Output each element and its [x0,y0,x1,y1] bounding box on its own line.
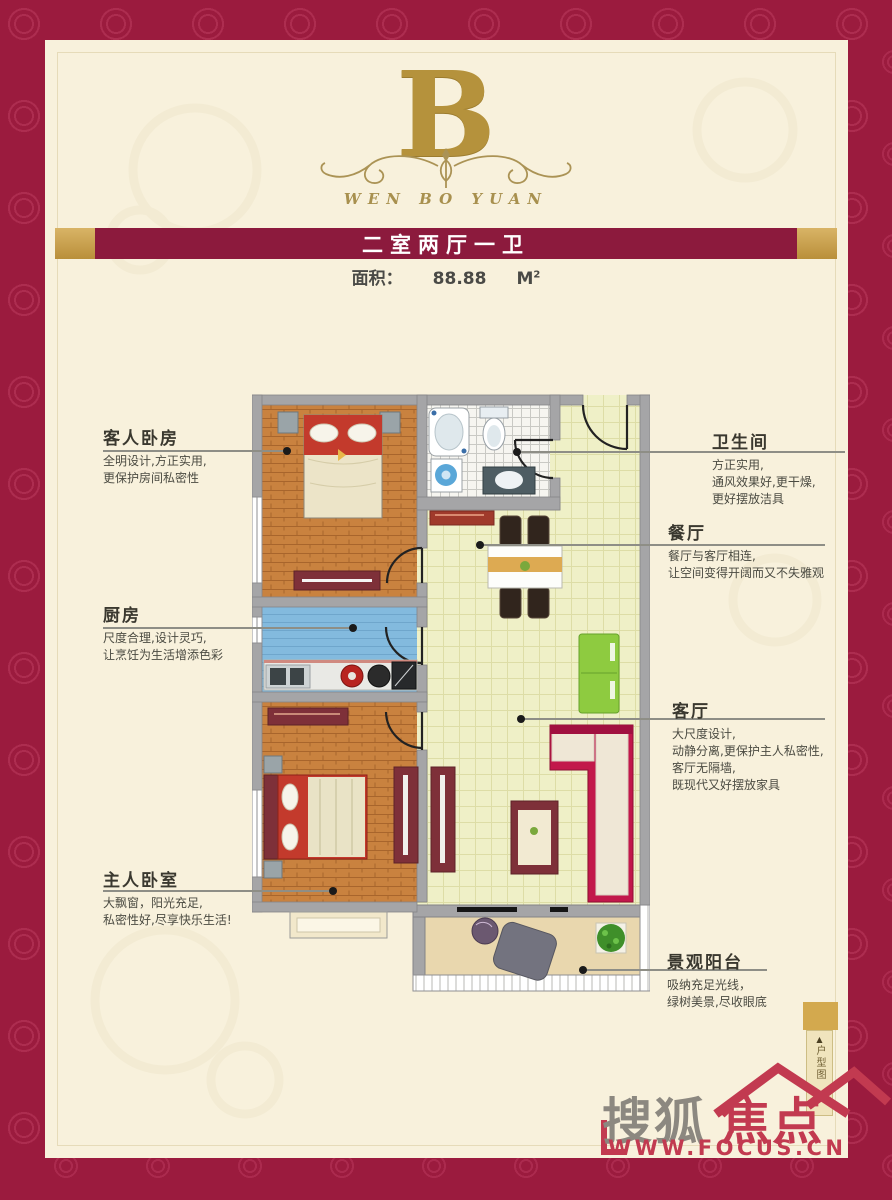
brand-name: WEN BO YUAN [0,190,892,208]
room-desc: 大飘窗，阳光充足, 私密性好,尽享快乐生活! [103,895,293,929]
room-title: 卫生间 [712,428,892,457]
room-label-bathroom: 卫生间 方正实用, 通风效果好,更干燥, 更好摆放洁具 [712,428,892,508]
room-desc: 餐厅与客厅相连, 让空间变得开阔而又不失雅观 [668,548,858,582]
area-label: 面积： [352,264,403,289]
type-banner: 二室两厅一卫 [55,228,837,259]
area-unit: M2 [516,269,540,289]
room-desc: 方正实用, 通风效果好,更干燥, 更好摆放洁具 [712,457,892,508]
room-title: 主人卧室 [103,866,293,895]
sohu-focus-logo: 搜狐 焦点 WWW.FOCUS.CN [596,1056,892,1168]
area-row: 面积： 88.88 M2 [0,264,892,289]
bay-window [290,912,387,938]
room-desc: 全明设计,方正实用, 更保护房间私密性 [103,453,293,487]
floor-plan [252,391,650,997]
room-title: 餐厅 [668,519,858,548]
room-label-kitchen: 厨房 尺度合理,设计灵巧, 让烹饪为生活增添色彩 [103,601,293,664]
logo-url: WWW.FOCUS.CN [608,1136,847,1160]
banner-gold-cap-left [55,228,95,259]
area-value: 88.88 [433,269,487,289]
room-label-dining: 餐厅 餐厅与客厅相连, 让空间变得开阔而又不失雅观 [668,519,858,582]
kitchen-furniture [264,660,417,690]
room-title: 景观阳台 [667,948,857,977]
room-title: 客人卧房 [103,424,293,453]
room-desc: 大尺度设计, 动静分离,更保护主人私密性, 客厅无隔墙, 既现代又好摆放家具 [672,726,862,794]
room-desc: 尺度合理,设计灵巧, 让烹饪为生活增添色彩 [103,630,293,664]
room-label-living: 客厅 大尺度设计, 动静分离,更保护主人私密性, 客厅无隔墙, 既现代又好摆放家… [672,697,862,794]
banner-gold-cap-right [797,228,837,259]
poster-page: B WEN BO YUAN 二室两厅一卫 面积： 88.88 M2 [0,0,892,1200]
gold-square [803,1002,838,1030]
room-label-master-bedroom: 主人卧室 大飘窗，阳光充足, 私密性好,尽享快乐生活! [103,866,293,929]
room-label-guest-bedroom: 客人卧房 全明设计,方正实用, 更保护房间私密性 [103,424,293,487]
room-title: 厨房 [103,601,293,630]
banner-title: 二室两厅一卫 [362,229,530,259]
triangle-up-icon: ▲ [816,1035,822,1045]
banner-bar: 二室两厅一卫 [95,228,797,259]
room-title: 客厅 [672,697,862,726]
